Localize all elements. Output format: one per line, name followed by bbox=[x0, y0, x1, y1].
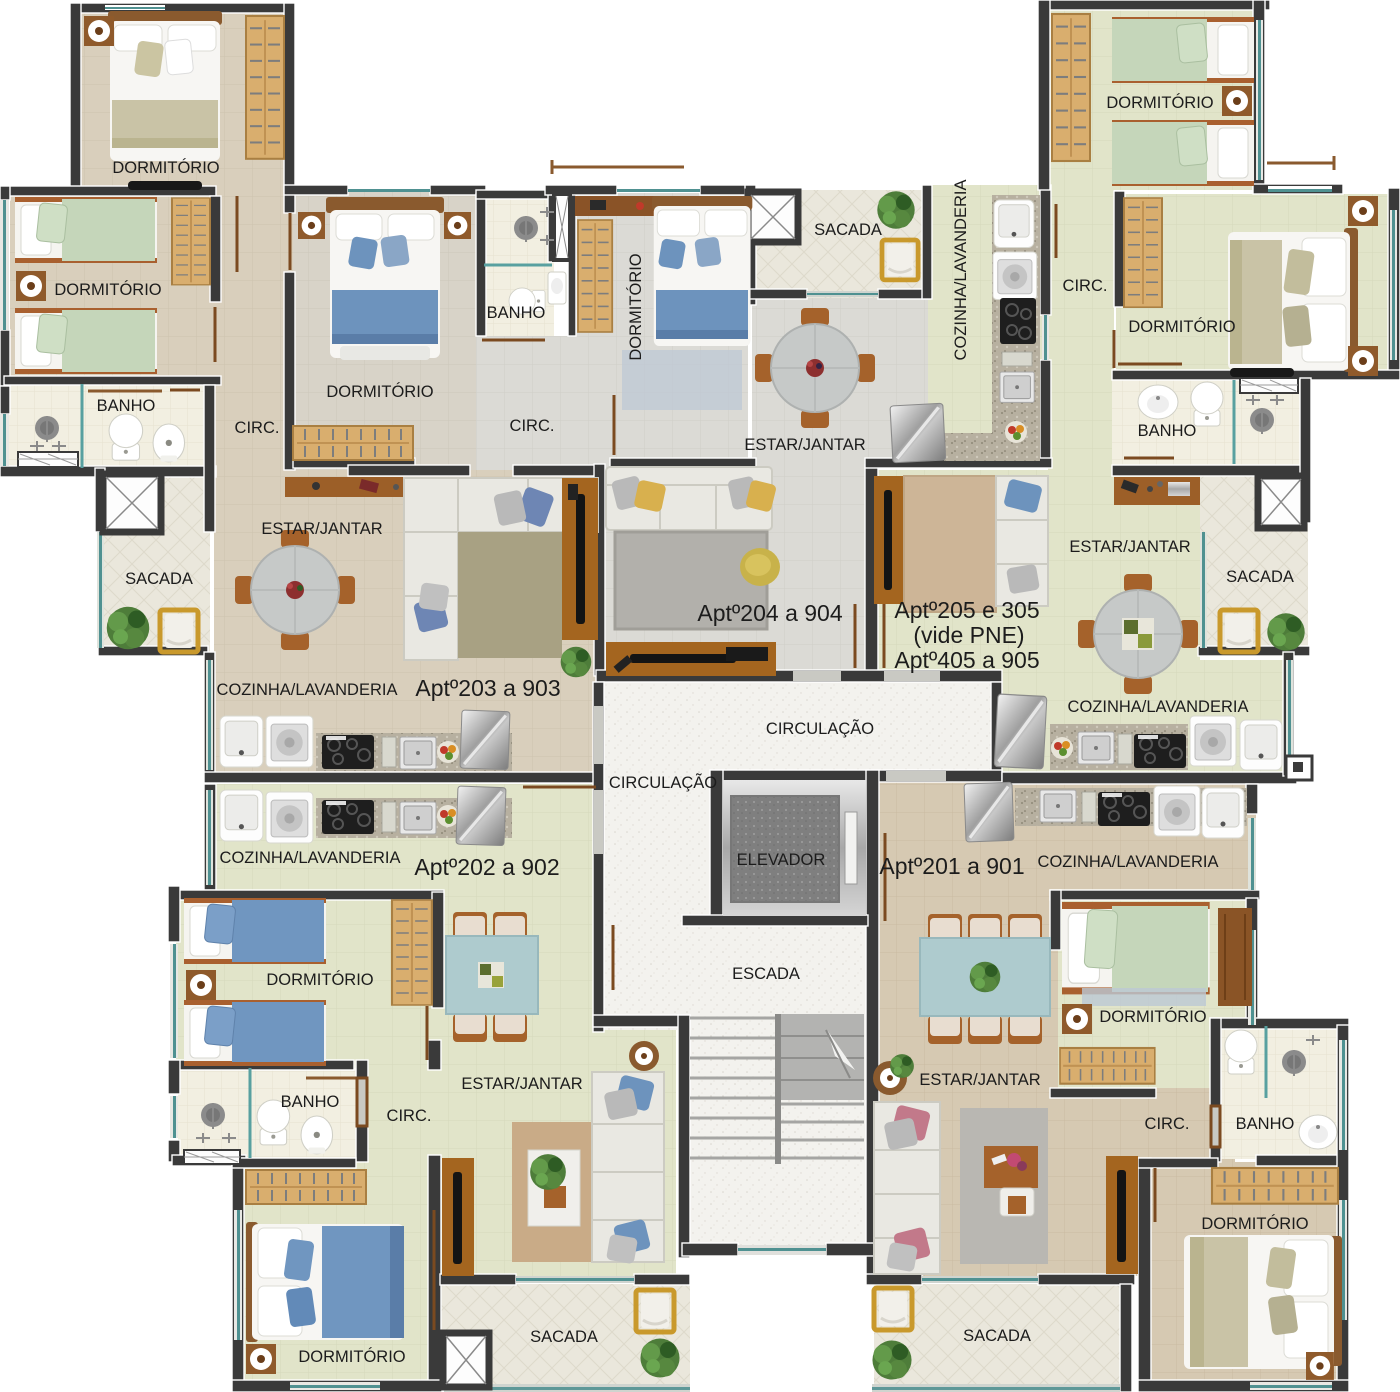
svg-text:CIRC.: CIRC. bbox=[1063, 277, 1108, 295]
svg-text:Aptº205 e 305: Aptº205 e 305 bbox=[894, 597, 1039, 623]
svg-text:BANHO: BANHO bbox=[487, 304, 546, 322]
svg-text:CIRC.: CIRC. bbox=[510, 417, 555, 435]
svg-text:DORMITÓRIO: DORMITÓRIO bbox=[54, 280, 161, 299]
svg-text:DORMITÓRIO: DORMITÓRIO bbox=[1106, 93, 1213, 112]
svg-text:ESCADA: ESCADA bbox=[732, 965, 800, 983]
svg-text:ELEVADOR: ELEVADOR bbox=[737, 851, 826, 869]
svg-text:BANHO: BANHO bbox=[97, 397, 156, 415]
svg-text:SACADA: SACADA bbox=[963, 1327, 1031, 1345]
svg-text:CIRC.: CIRC. bbox=[1145, 1115, 1190, 1133]
svg-text:CIRCULAÇÃO: CIRCULAÇÃO bbox=[609, 772, 717, 792]
svg-text:ESTAR/JANTAR: ESTAR/JANTAR bbox=[744, 436, 865, 454]
svg-text:CIRC.: CIRC. bbox=[387, 1107, 432, 1125]
svg-text:SACADA: SACADA bbox=[814, 221, 882, 239]
svg-text:DORMITÓRIO: DORMITÓRIO bbox=[1128, 317, 1235, 336]
svg-text:Aptº201 a 901: Aptº201 a 901 bbox=[879, 853, 1024, 879]
svg-text:DORMITÓRIO: DORMITÓRIO bbox=[626, 253, 645, 360]
svg-text:Aptº204 a 904: Aptº204 a 904 bbox=[697, 600, 842, 626]
svg-text:SACADA: SACADA bbox=[1226, 568, 1294, 586]
svg-text:DORMITÓRIO: DORMITÓRIO bbox=[112, 158, 219, 177]
svg-text:BANHO: BANHO bbox=[1138, 422, 1197, 440]
svg-text:DORMITÓRIO: DORMITÓRIO bbox=[326, 382, 433, 401]
svg-text:Aptº203 a 903: Aptº203 a 903 bbox=[415, 675, 560, 701]
svg-text:Aptº405 a 905: Aptº405 a 905 bbox=[894, 647, 1039, 673]
svg-text:ESTAR/JANTAR: ESTAR/JANTAR bbox=[461, 1075, 582, 1093]
svg-text:DORMITÓRIO: DORMITÓRIO bbox=[1201, 1214, 1308, 1233]
svg-text:COZINHA/LAVANDERIA: COZINHA/LAVANDERIA bbox=[952, 180, 970, 361]
svg-text:BANHO: BANHO bbox=[1236, 1115, 1295, 1133]
svg-text:ESTAR/JANTAR: ESTAR/JANTAR bbox=[919, 1071, 1040, 1089]
svg-text:BANHO: BANHO bbox=[281, 1093, 340, 1111]
svg-text:CIRC.: CIRC. bbox=[235, 419, 280, 437]
svg-text:ESTAR/JANTAR: ESTAR/JANTAR bbox=[261, 520, 382, 538]
svg-text:Aptº202 a 902: Aptº202 a 902 bbox=[414, 854, 559, 880]
svg-text:COZINHA/LAVANDERIA: COZINHA/LAVANDERIA bbox=[217, 681, 398, 699]
svg-text:SACADA: SACADA bbox=[530, 1328, 598, 1346]
svg-text:(vide PNE): (vide PNE) bbox=[913, 622, 1024, 648]
svg-text:CIRCULAÇÃO: CIRCULAÇÃO bbox=[766, 718, 874, 738]
svg-text:COZINHA/LAVANDERIA: COZINHA/LAVANDERIA bbox=[220, 849, 401, 867]
svg-text:COZINHA/LAVANDERIA: COZINHA/LAVANDERIA bbox=[1068, 698, 1249, 716]
svg-text:COZINHA/LAVANDERIA: COZINHA/LAVANDERIA bbox=[1038, 853, 1219, 871]
svg-text:DORMITÓRIO: DORMITÓRIO bbox=[298, 1347, 405, 1366]
svg-text:DORMITÓRIO: DORMITÓRIO bbox=[1099, 1007, 1206, 1026]
svg-text:ESTAR/JANTAR: ESTAR/JANTAR bbox=[1069, 538, 1190, 556]
svg-text:DORMITÓRIO: DORMITÓRIO bbox=[266, 970, 373, 989]
svg-text:SACADA: SACADA bbox=[125, 570, 193, 588]
